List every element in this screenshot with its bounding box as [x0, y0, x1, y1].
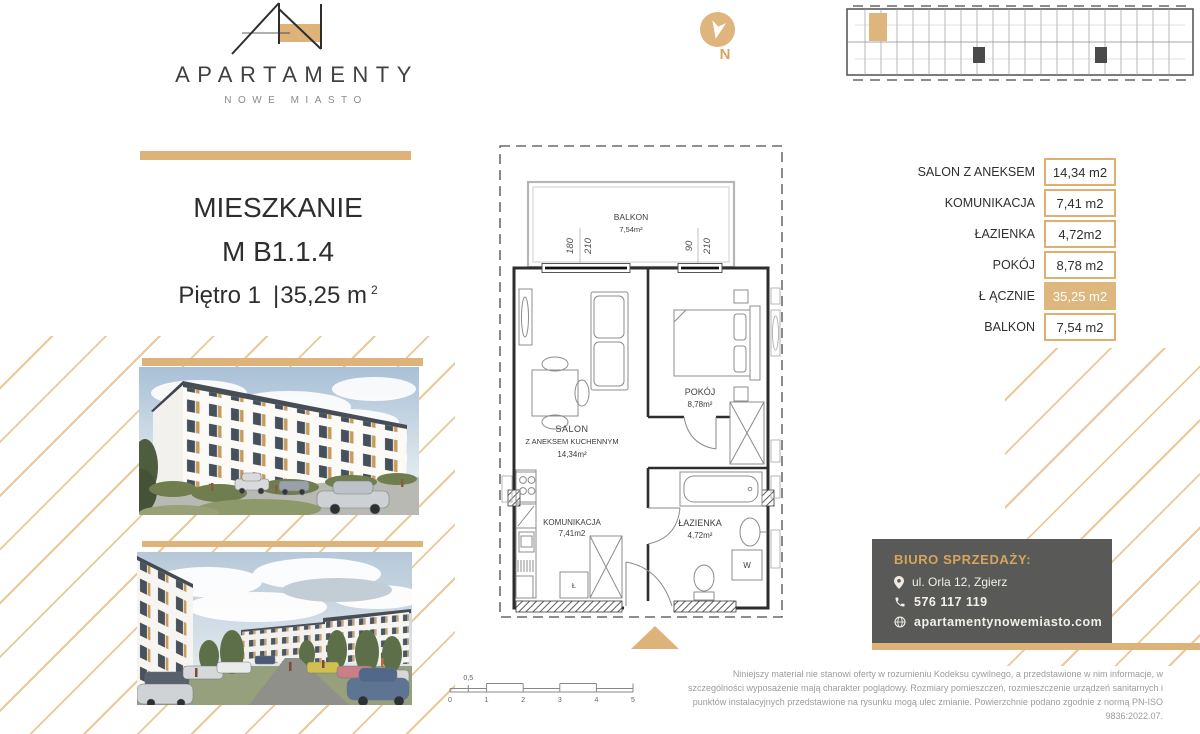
unit-title: MIESZKANIE — [140, 192, 416, 224]
room-area-value: 14,34 m2 — [1044, 158, 1116, 186]
unit-card: MIESZKANIE M B1.1.4 Piętro 1|35,25 m2 — [140, 192, 416, 310]
svg-text:SALON: SALON — [555, 424, 588, 434]
svg-text:Z ANEKSEM KUCHENNYM: Z ANEKSEM KUCHENNYM — [525, 437, 618, 446]
brand-name: APARTAMENTY — [140, 62, 447, 88]
room-area-value: 7,54 m2 — [1044, 313, 1116, 341]
svg-text:ŁAZIENKA: ŁAZIENKA — [678, 518, 722, 528]
table-row: KOMUNIKACJA 7,41 m2 — [900, 189, 1116, 217]
svg-text:14,34m²: 14,34m² — [557, 450, 587, 459]
brochure-page: APARTAMENTY NOWE MIASTO N MIESZKANIE M B… — [0, 0, 1200, 734]
room-area-value: 8,78 m2 — [1044, 251, 1116, 279]
brand-tagline: NOWE MIASTO — [140, 95, 446, 106]
svg-text:5: 5 — [631, 697, 635, 704]
areas-table: SALON Z ANEKSEM 14,34 m2 KOMUNIKACJA 7,4… — [900, 158, 1116, 344]
table-row: SALON Z ANEKSEM 14,34 m2 — [900, 158, 1116, 186]
brand-monogram-icon — [228, 2, 324, 56]
building-overview-plan — [845, 5, 1195, 87]
table-row: BALKON 7,54 m2 — [900, 313, 1116, 341]
unit-area: 35,25 m — [280, 282, 367, 309]
svg-text:210: 210 — [583, 237, 594, 255]
svg-text:3: 3 — [558, 697, 562, 704]
svg-text:0: 0 — [448, 697, 452, 704]
title-accent-bar — [140, 151, 411, 160]
svg-text:Ł: Ł — [572, 581, 576, 590]
phone-row: 576 117 119 — [894, 595, 1112, 609]
phone-icon — [894, 596, 906, 608]
svg-text:0,5: 0,5 — [463, 675, 473, 682]
room-label: BALKON — [984, 320, 1035, 334]
contact-accent-bar — [872, 643, 1200, 650]
website-text: apartamentynowemiasto.com — [914, 615, 1102, 629]
table-row-total: Ł ĄCZNIE 35,25 m2 — [900, 282, 1116, 310]
unit-number: M B1.1.4 — [140, 236, 416, 268]
svg-text:7,41m2: 7,41m2 — [559, 529, 586, 538]
sales-office-heading: BIURO SPRZEDAŻY: — [894, 552, 1112, 567]
svg-text:4: 4 — [594, 697, 598, 704]
svg-text:POKÓJ: POKÓJ — [685, 387, 716, 397]
separator: | — [273, 282, 279, 309]
svg-text:90: 90 — [684, 240, 695, 251]
globe-icon — [894, 616, 906, 628]
address-row: ul. Orla 12, Zgierz — [894, 575, 1112, 589]
area-exponent: 2 — [371, 283, 378, 297]
scale-bar: 0 1 2 3 4 5 0,5 — [446, 670, 641, 710]
unit-meta: Piętro 1|35,25 m2 — [140, 282, 416, 310]
svg-text:KOMUNIKACJA: KOMUNIKACJA — [543, 518, 601, 527]
table-row: POKÓJ 8,78 m2 — [900, 251, 1116, 279]
room-label: POKÓJ — [993, 258, 1035, 272]
address-text: ul. Orla 12, Zgierz — [912, 575, 1007, 589]
phone-text: 576 117 119 — [914, 595, 988, 609]
svg-text:BALKON: BALKON — [614, 212, 649, 222]
entrance-marker — [631, 626, 679, 649]
room-label: ŁAZIENKA — [975, 227, 1035, 241]
svg-text:4,72m²: 4,72m² — [688, 531, 713, 540]
room-label: SALON Z ANEKSEM — [918, 165, 1035, 179]
location-pin-icon — [894, 576, 904, 589]
brand-logo: APARTAMENTY NOWE MIASTO — [140, 0, 440, 120]
table-row: ŁAZIENKA 4,72m2 — [900, 220, 1116, 248]
photo1-accent-bar — [142, 358, 423, 366]
room-area-value: 7,41 m2 — [1044, 189, 1116, 217]
floor-plan: BALKON 7,54m² 180 210 90 210 — [488, 140, 803, 660]
total-area-value: 35,25 m2 — [1044, 282, 1116, 310]
highlighted-unit — [869, 13, 887, 41]
svg-text:7,54m²: 7,54m² — [619, 225, 643, 234]
building-photo-1 — [139, 367, 419, 515]
sales-office-card: BIURO SPRZEDAŻY: ul. Orla 12, Zgierz 576… — [872, 539, 1112, 643]
svg-text:8,78m²: 8,78m² — [688, 400, 713, 409]
compass-icon — [700, 12, 735, 47]
svg-text:W: W — [743, 561, 751, 570]
photo2-accent-bar — [142, 541, 423, 547]
scale-ticks: 0 1 2 3 4 5 0,5 — [448, 675, 635, 704]
svg-text:1: 1 — [485, 697, 489, 704]
legal-disclaimer: Niniejszy materiał nie stanowi oferty w … — [683, 668, 1163, 724]
svg-text:180: 180 — [565, 237, 576, 254]
website-row: apartamentynowemiasto.com — [894, 615, 1112, 629]
svg-text:2: 2 — [521, 697, 525, 704]
svg-text:210: 210 — [702, 237, 713, 255]
room-area-value: 4,72m2 — [1044, 220, 1116, 248]
room-label: KOMUNIKACJA — [945, 196, 1035, 210]
compass-north-label: N — [715, 46, 735, 63]
room-label: Ł ĄCZNIE — [979, 289, 1035, 303]
unit-floor: Piętro 1 — [178, 282, 261, 309]
courtyard-photo-2 — [137, 552, 412, 705]
